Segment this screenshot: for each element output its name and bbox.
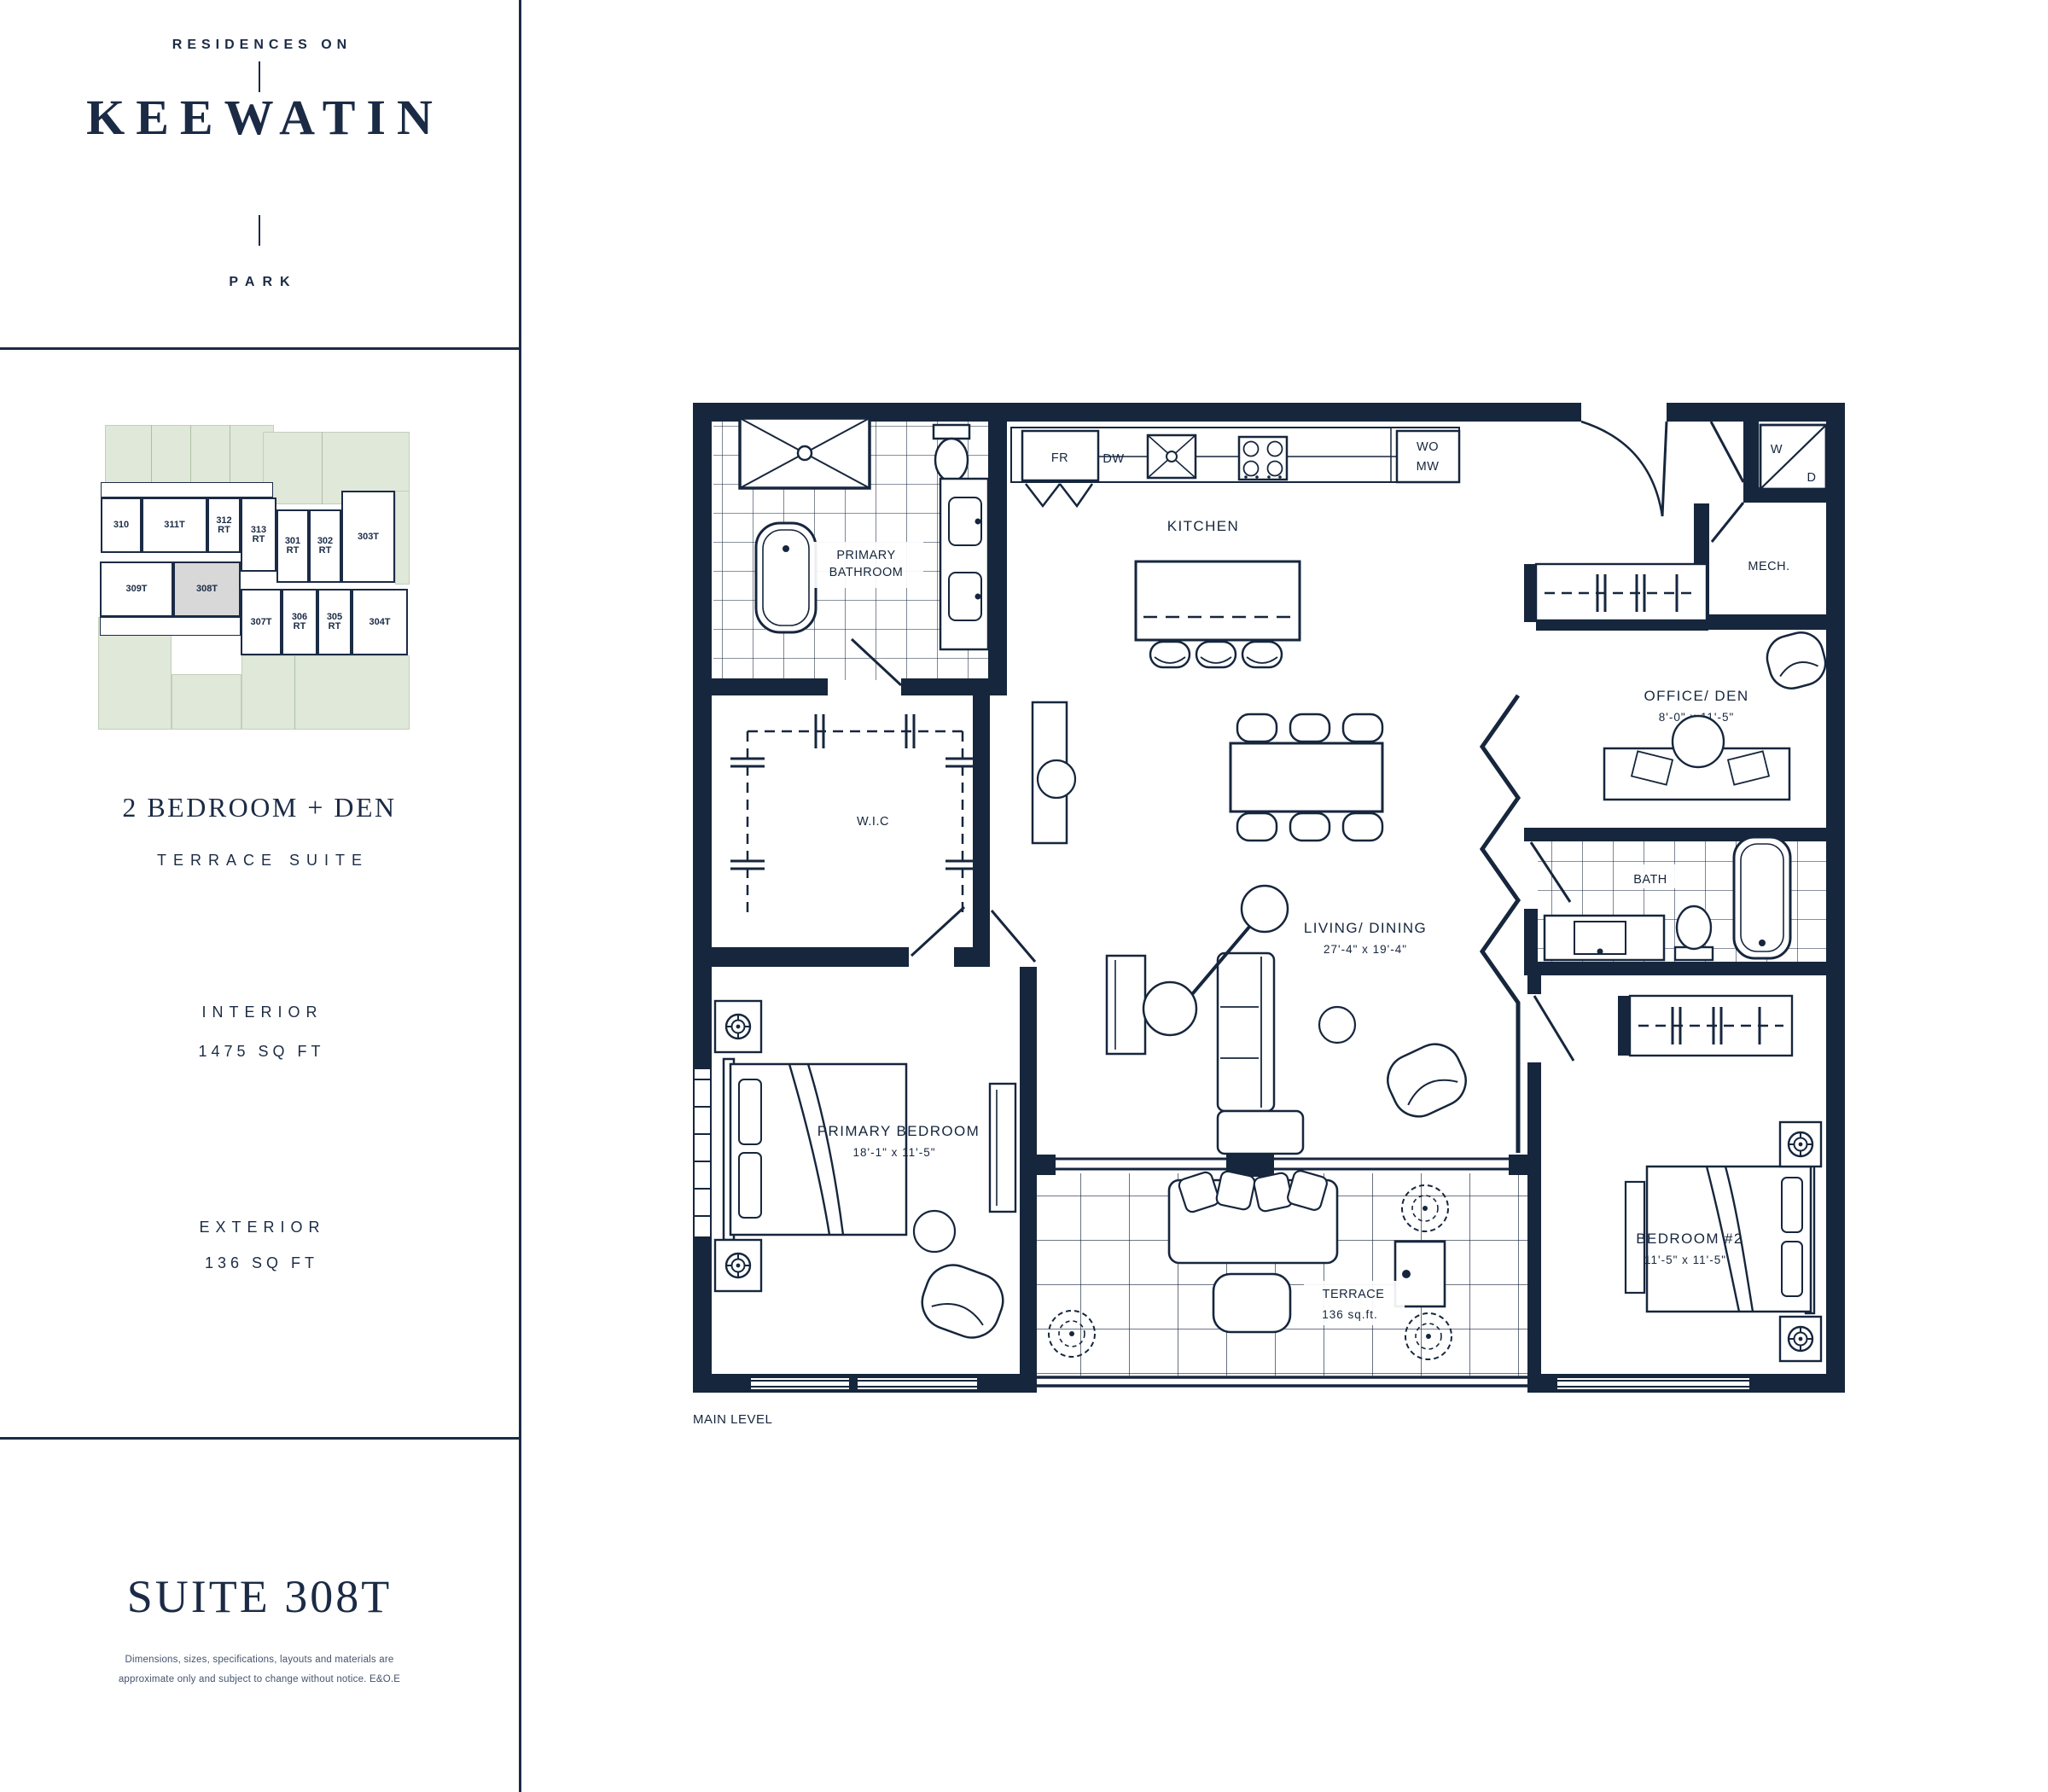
keyplan-suite-301RT: 301RT <box>276 509 309 583</box>
brand-tick-top <box>259 61 260 92</box>
suite-num: 312 <box>216 516 231 526</box>
bath-toilet <box>1675 906 1713 960</box>
office-armchair <box>1762 628 1830 694</box>
keyplan-suite-303T: 303T <box>341 491 395 583</box>
keyplan-suite-311T: 311T <box>142 497 207 553</box>
bath-vanity <box>1545 916 1664 960</box>
shower <box>740 418 870 488</box>
bedroom2-dims: 11'-5" x 11'-5" <box>1644 1254 1726 1266</box>
brand-park: PARK <box>0 275 519 290</box>
keyplan-terrace-strip <box>101 482 273 497</box>
terrace-sofa <box>1169 1169 1337 1263</box>
wic-closet <box>730 714 980 919</box>
living-sofa <box>1218 953 1303 1154</box>
suite-num: 310 <box>113 521 129 530</box>
washer-label: W <box>1771 443 1783 457</box>
primary-bathroom-label: PRIMARY <box>836 549 895 562</box>
fridge-label: FR <box>1051 451 1068 465</box>
kitchen-island <box>1136 561 1300 667</box>
sidebar-rule-bottom <box>0 1437 519 1440</box>
suite-title: SUITE 308T <box>0 1570 519 1623</box>
zigzag-wall <box>1482 695 1518 1153</box>
bathtub <box>756 523 816 632</box>
interior-value: 1475 SQ FT <box>0 1043 519 1061</box>
terrace-label: TERRACE <box>1323 1288 1385 1301</box>
mech-label: MECH. <box>1748 560 1789 573</box>
kitchen-sink <box>1148 435 1196 478</box>
sidebar-rule-top <box>0 347 519 350</box>
disclaimer: Dimensions, sizes, specifications, layou… <box>0 1650 519 1690</box>
dining-table <box>1231 714 1382 841</box>
keyplan-suite-304T: 304T <box>352 589 408 655</box>
bed2-closet <box>1630 996 1792 1056</box>
exterior-label: EXTERIOR <box>0 1219 519 1236</box>
keyplan-lot-line <box>322 432 323 504</box>
disclaimer-line2: approximate only and subject to change w… <box>0 1670 519 1690</box>
bedroom2-label: BEDROOM #2 <box>1636 1231 1743 1247</box>
terrace-coffee-table <box>1213 1274 1290 1332</box>
suite-num: 307T <box>250 618 271 627</box>
brand-residences-on: RESIDENCES ON <box>0 38 519 53</box>
primary-tv-console <box>990 1084 1015 1212</box>
keyplan-suite-305RT: 305RT <box>317 589 352 655</box>
suite-num: 303T <box>358 532 379 542</box>
suite-num: 304T <box>369 618 390 627</box>
suite-suffix: RT <box>319 546 332 556</box>
wall-oven-microwave <box>1397 431 1459 482</box>
interior-label: INTERIOR <box>0 1004 519 1021</box>
primary-armchair <box>914 1211 1010 1345</box>
suite-num: 309T <box>125 585 147 594</box>
suite-suffix: RT <box>294 622 306 631</box>
suite-suffix: RT <box>253 535 265 544</box>
suite-num: 308T <box>196 585 218 594</box>
living-dining-label: LIVING/ DINING <box>1304 920 1427 936</box>
sidebar-divider <box>519 0 521 1792</box>
media-console <box>1107 956 1145 1054</box>
fridge <box>1022 431 1098 506</box>
keyplan-green-area <box>172 674 241 730</box>
brand-keewatin: KEEWATIN <box>0 89 519 146</box>
primary-bathroom-label2: BATHROOM <box>829 566 904 579</box>
primary-bedroom-dims: 18'-1" x 11'-5" <box>852 1146 935 1159</box>
keyplan-lot-line <box>294 655 295 730</box>
suite-num: 311T <box>164 521 184 530</box>
brand-tick-bottom <box>259 215 260 246</box>
keyplan-suite-310: 310 <box>101 497 142 553</box>
floorplan-page: { "brand": { "top": "RESIDENCES ON", "na… <box>0 0 2048 1792</box>
dryer-label: D <box>1807 471 1817 485</box>
wall-oven-label: WO <box>1417 440 1439 454</box>
toilet <box>934 425 969 481</box>
keyplan-suite-309T: 309T <box>100 561 173 617</box>
office-den-label: OFFICE/ DEN <box>1644 688 1748 704</box>
foyer-closet <box>1536 564 1707 620</box>
exterior-value: 136 SQ FT <box>0 1254 519 1272</box>
main-level-label: MAIN LEVEL <box>693 1412 772 1427</box>
keyplan-suite-308T-highlighted: 308T <box>173 561 241 617</box>
suite-suffix: RT <box>287 546 300 556</box>
microwave-label: MW <box>1417 460 1440 474</box>
suite-suffix: RT <box>218 526 230 535</box>
bath-tub <box>1734 837 1790 958</box>
keyplan-suite-302RT: 302RT <box>309 509 341 583</box>
floor-plan: PRIMARY BATHROOM W.I.C FR DW <box>691 397 1845 1429</box>
kitchen-label: KITCHEN <box>1167 518 1239 534</box>
keyplan-suite-306RT: 306RT <box>282 589 317 655</box>
vanity-double-sink <box>940 479 988 649</box>
wic-label: W.I.C <box>857 815 889 829</box>
keyplan-terrace-strip <box>100 617 241 636</box>
suite-num: 313 <box>251 526 266 535</box>
suite-suffix: RT <box>329 622 341 631</box>
office-desk <box>1604 716 1789 800</box>
keyplan-suite-307T: 307T <box>241 589 282 655</box>
suite-subtype: TERRACE SUITE <box>0 852 519 870</box>
keyplan-green-area <box>241 655 410 730</box>
keyplan-suite-312RT: 312RT <box>207 497 241 553</box>
round-side-table <box>1143 982 1196 1035</box>
console-desk <box>1033 702 1075 843</box>
suite-type: 2 BEDROOM + DEN <box>0 792 519 823</box>
keyplan-green-area <box>395 491 410 585</box>
terrace-dims: 136 sq.ft. <box>1322 1308 1378 1321</box>
disclaimer-line1: Dimensions, sizes, specifications, layou… <box>0 1650 519 1670</box>
dishwasher-label: DW <box>1103 452 1124 466</box>
living-armchair <box>1319 1007 1475 1125</box>
cooktop <box>1239 437 1287 480</box>
keyplan: 310 311T 312RT 313RT 301RT 302RT 303T 30… <box>98 425 412 734</box>
primary-bedroom-label: PRIMARY BEDROOM <box>817 1123 980 1139</box>
keyplan-suite-313RT: 313RT <box>241 497 276 572</box>
living-dining-dims: 27'-4" x 19'-4" <box>1324 943 1407 956</box>
bath-label: BATH <box>1633 873 1667 887</box>
